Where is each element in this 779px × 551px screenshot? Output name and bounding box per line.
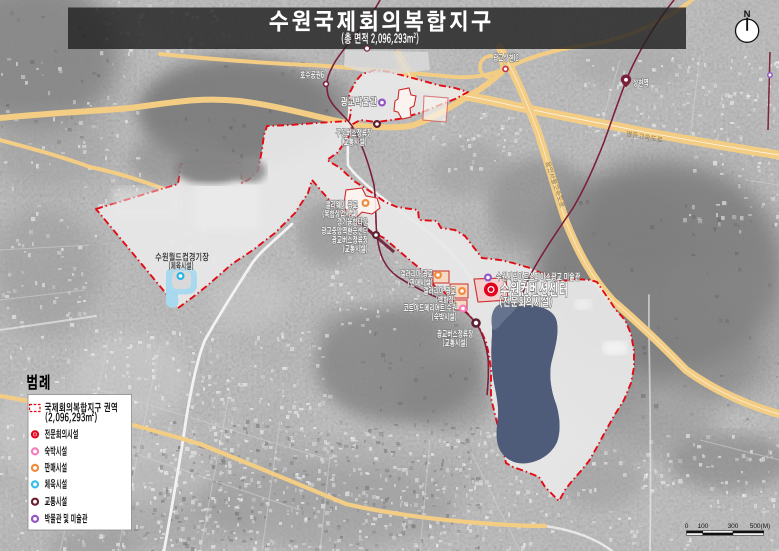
svg-text:300: 300 xyxy=(728,523,739,530)
svg-text:100: 100 xyxy=(698,523,709,530)
svg-text:500(M): 500(M) xyxy=(750,523,771,530)
svg-text:0: 0 xyxy=(685,523,689,530)
svg-text:N: N xyxy=(744,9,751,20)
